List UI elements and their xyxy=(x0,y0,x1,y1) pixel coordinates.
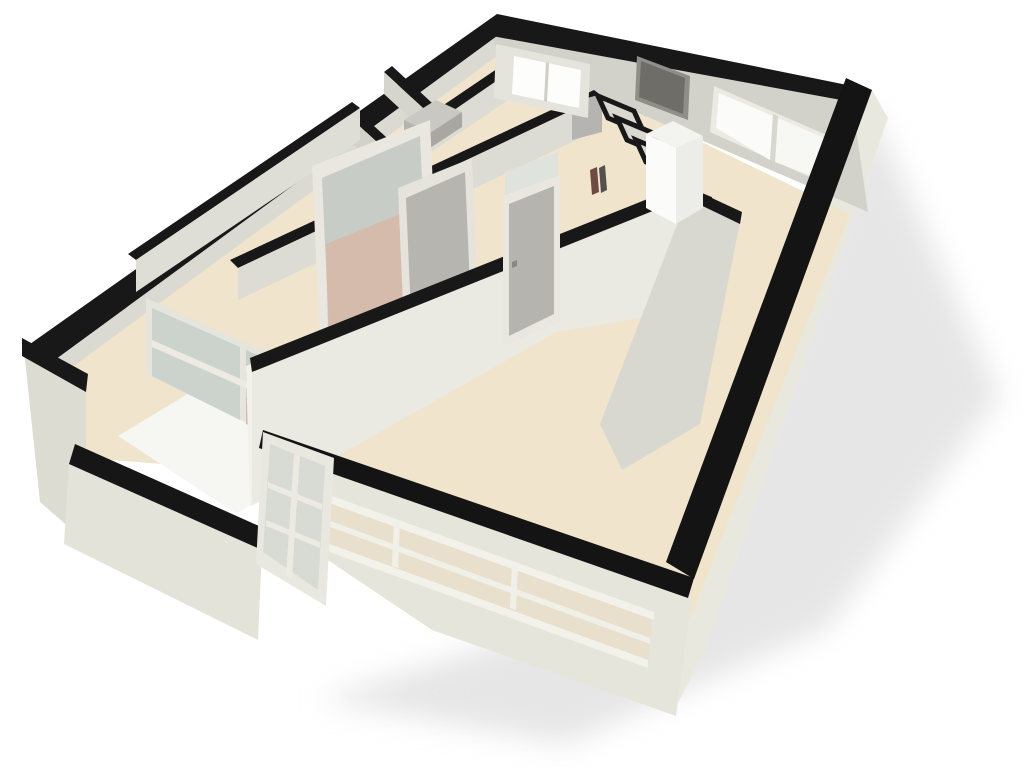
floorplan-shapes xyxy=(22,14,1000,744)
floorplan-canvas xyxy=(0,0,1024,768)
floorplan-viewport xyxy=(0,0,1024,768)
